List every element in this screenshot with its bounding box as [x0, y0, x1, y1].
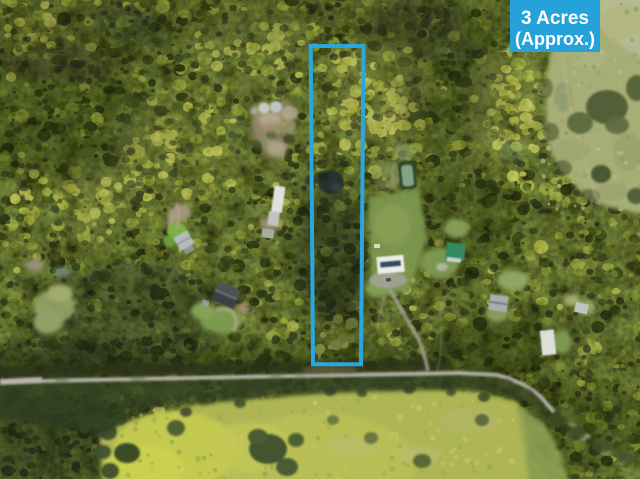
svg-text:(Approx.): (Approx.)	[515, 29, 595, 49]
svg-text:3 Acres: 3 Acres	[521, 8, 589, 29]
